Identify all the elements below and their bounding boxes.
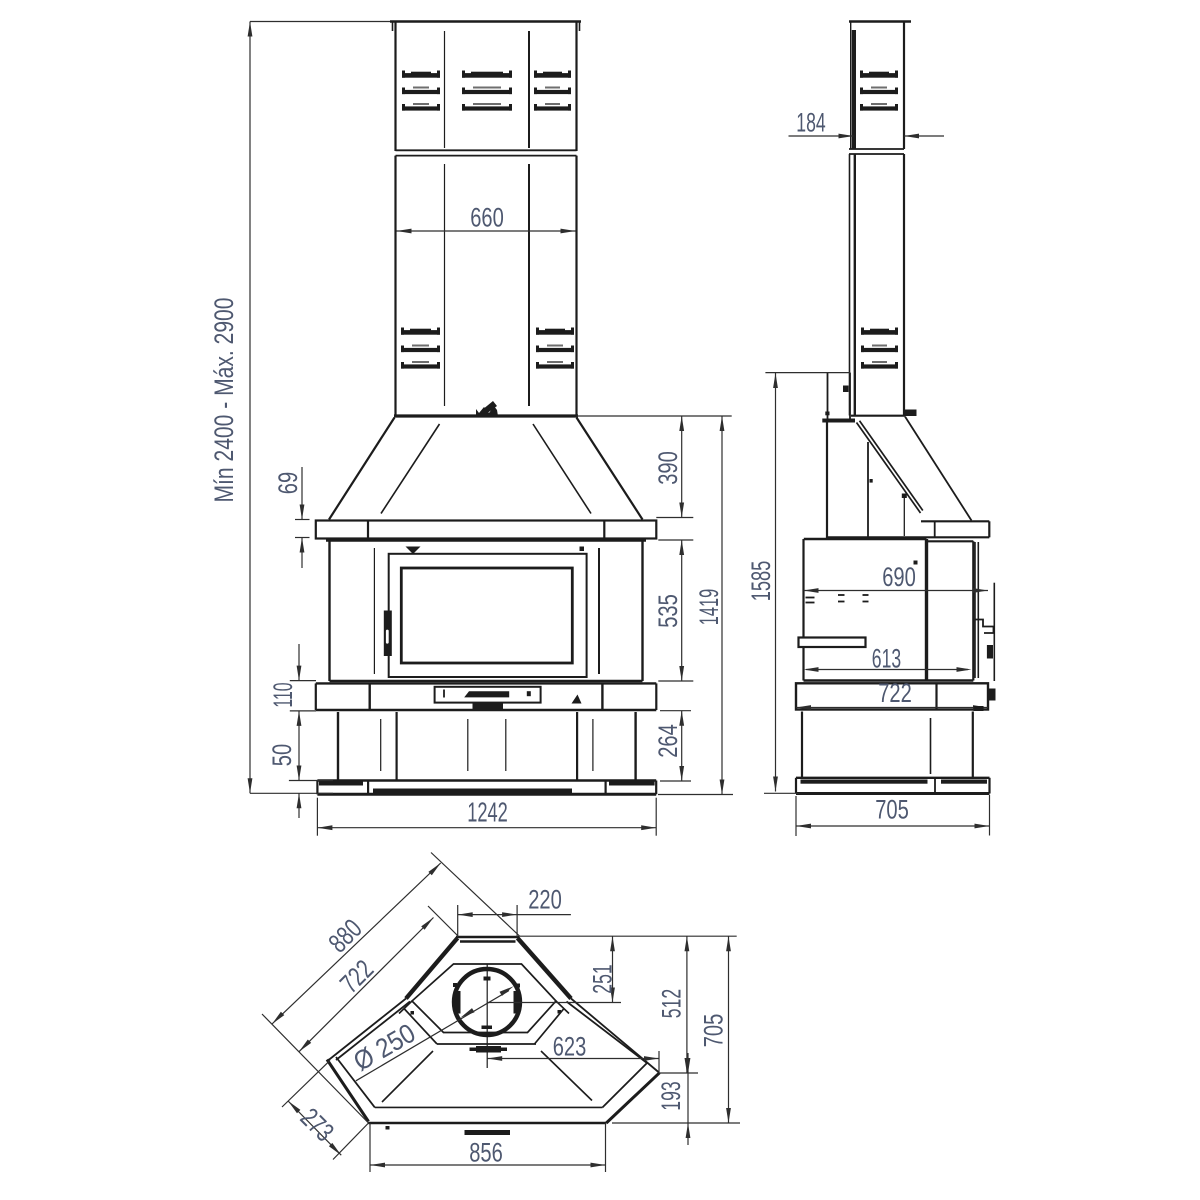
svg-text:722: 722 bbox=[878, 678, 912, 708]
svg-text:220: 220 bbox=[528, 884, 562, 914]
svg-text:1242: 1242 bbox=[467, 797, 508, 828]
svg-text:856: 856 bbox=[469, 1137, 503, 1167]
svg-text:Mín 2400 - Máx. 2900: Mín 2400 - Máx. 2900 bbox=[209, 298, 239, 503]
svg-text:512: 512 bbox=[656, 989, 686, 1018]
svg-text:264: 264 bbox=[653, 724, 683, 758]
svg-text:623: 623 bbox=[553, 1031, 587, 1061]
svg-text:69: 69 bbox=[273, 472, 303, 494]
svg-text:1419: 1419 bbox=[694, 589, 724, 625]
svg-text:613: 613 bbox=[872, 643, 901, 673]
svg-text:50: 50 bbox=[267, 744, 297, 766]
svg-text:660: 660 bbox=[470, 202, 504, 232]
svg-text:110: 110 bbox=[268, 682, 298, 707]
svg-text:535: 535 bbox=[653, 594, 683, 628]
svg-text:184: 184 bbox=[796, 107, 825, 137]
svg-text:1585: 1585 bbox=[746, 561, 776, 602]
svg-text:390: 390 bbox=[653, 451, 683, 485]
svg-text:690: 690 bbox=[882, 562, 916, 592]
svg-text:705: 705 bbox=[698, 1014, 728, 1048]
svg-text:193: 193 bbox=[656, 1081, 686, 1110]
svg-text:251: 251 bbox=[587, 964, 617, 993]
svg-text:705: 705 bbox=[875, 794, 909, 824]
